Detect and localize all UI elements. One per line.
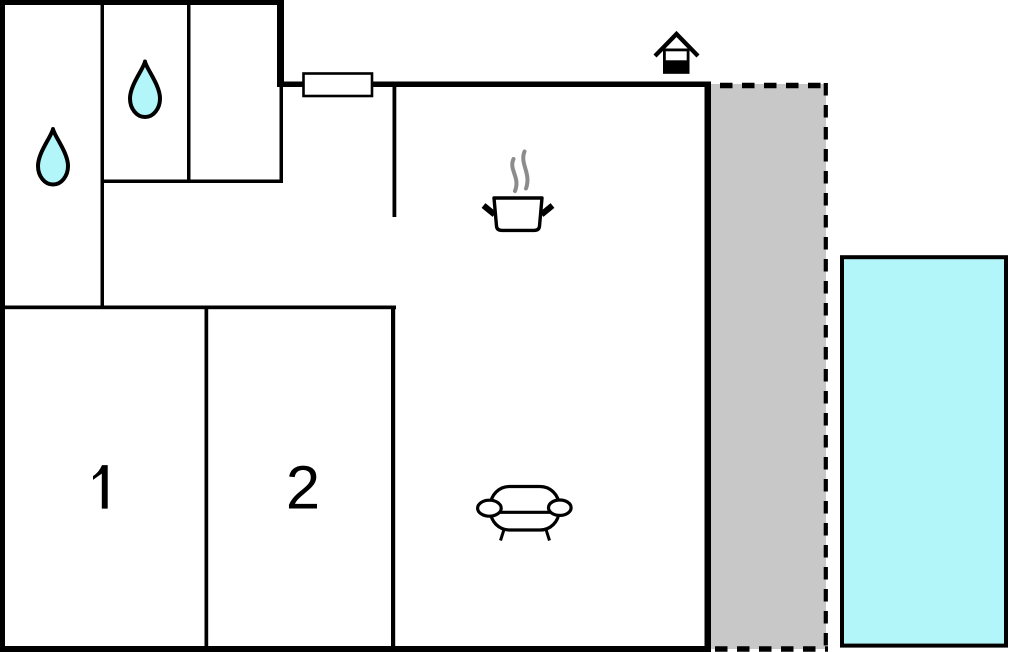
svg-text:2: 2 [286,454,320,523]
